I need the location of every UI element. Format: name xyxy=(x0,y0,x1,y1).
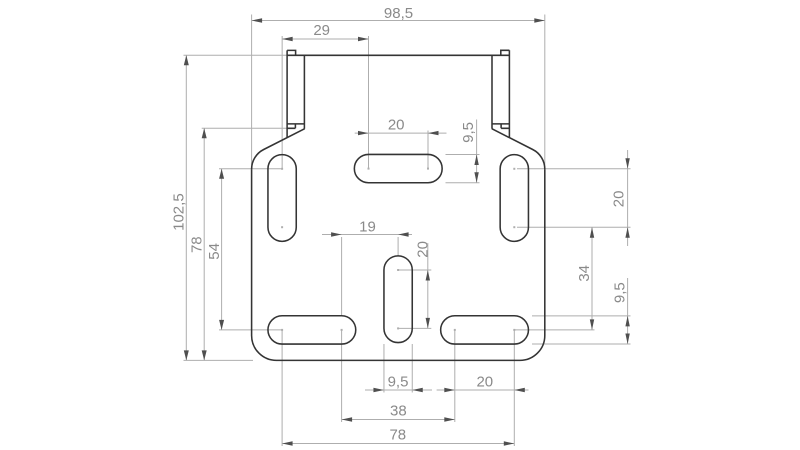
svg-text:102,5: 102,5 xyxy=(170,193,187,231)
svg-text:20: 20 xyxy=(388,116,405,133)
svg-text:20: 20 xyxy=(476,373,493,390)
svg-text:9,5: 9,5 xyxy=(612,282,629,303)
svg-text:78: 78 xyxy=(389,427,406,444)
svg-text:20: 20 xyxy=(610,191,627,208)
svg-text:78: 78 xyxy=(189,236,206,253)
svg-text:38: 38 xyxy=(390,402,407,419)
svg-text:29: 29 xyxy=(313,22,330,39)
svg-text:9,5: 9,5 xyxy=(460,122,477,143)
svg-text:98,5: 98,5 xyxy=(384,5,413,22)
svg-text:20: 20 xyxy=(414,241,431,258)
svg-text:9,5: 9,5 xyxy=(388,374,409,391)
svg-text:54: 54 xyxy=(206,243,223,260)
svg-text:19: 19 xyxy=(359,218,376,235)
svg-text:34: 34 xyxy=(576,265,593,282)
